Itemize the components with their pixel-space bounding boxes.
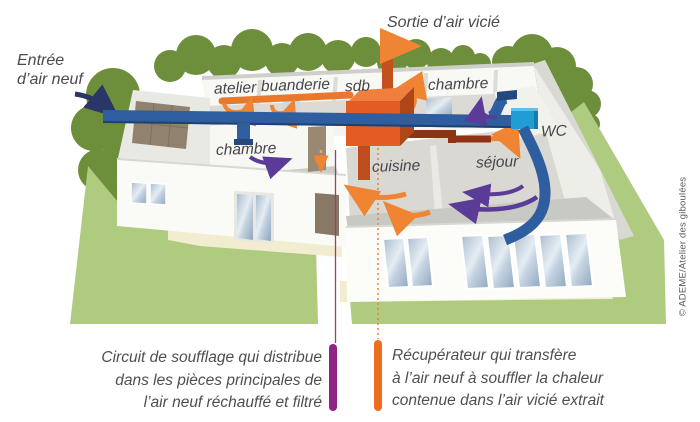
circuit-marker-bar [329, 344, 337, 411]
room-label-atelier: atelier [214, 78, 257, 98]
window-small-2 [150, 183, 166, 205]
supply-drop-chambre [237, 123, 250, 141]
room-label-chambre-front: chambre [216, 139, 277, 160]
circuit-caption-line2: dans les pièces principales de [101, 370, 322, 393]
room-label-wc: WC [541, 122, 567, 142]
air-inlet-line2: d’air neuf [17, 70, 83, 89]
vmc-house-diagram: Entrée d’air neuf Sortie d’air vicié ate… [0, 0, 700, 422]
recuperateur-caption-line1: Récupérateur qui transfère [392, 345, 604, 368]
recuperateur-caption-line3: contenue dans l’air vicié extrait [392, 390, 604, 413]
air-inlet-label: Entrée d’air neuf [17, 51, 83, 89]
recuperateur-caption-line2: à l’air neuf à souffler la chaleur [392, 368, 604, 391]
wc-extract-unit [511, 108, 538, 129]
window-small-1 [131, 182, 147, 204]
room-label-cuisine: cuisine [372, 156, 421, 177]
interior-door [308, 126, 326, 172]
room-label-chambre-back: chambre [428, 74, 489, 95]
circuit-caption: Circuit de soufflage qui distribue dans … [101, 347, 322, 415]
credit-line: © ADEME/Atelier des giboulées [678, 159, 691, 335]
circuit-caption-line3: l’air neuf réchauffé et filtré [101, 392, 322, 415]
room-label-sejour: séjour [476, 152, 519, 172]
circuit-caption-line1: Circuit de soufflage qui distribue [101, 347, 322, 370]
air-outlet-label: Sortie d’air vicié [387, 13, 500, 32]
room-label-sdb: sdb [345, 77, 371, 97]
room-label-buanderie: buanderie [261, 75, 331, 96]
recuperateur-marker-bar [374, 340, 382, 411]
air-inlet-line1: Entrée [17, 51, 83, 70]
recuperateur-caption: Récupérateur qui transfère à l’air neuf … [392, 345, 604, 413]
